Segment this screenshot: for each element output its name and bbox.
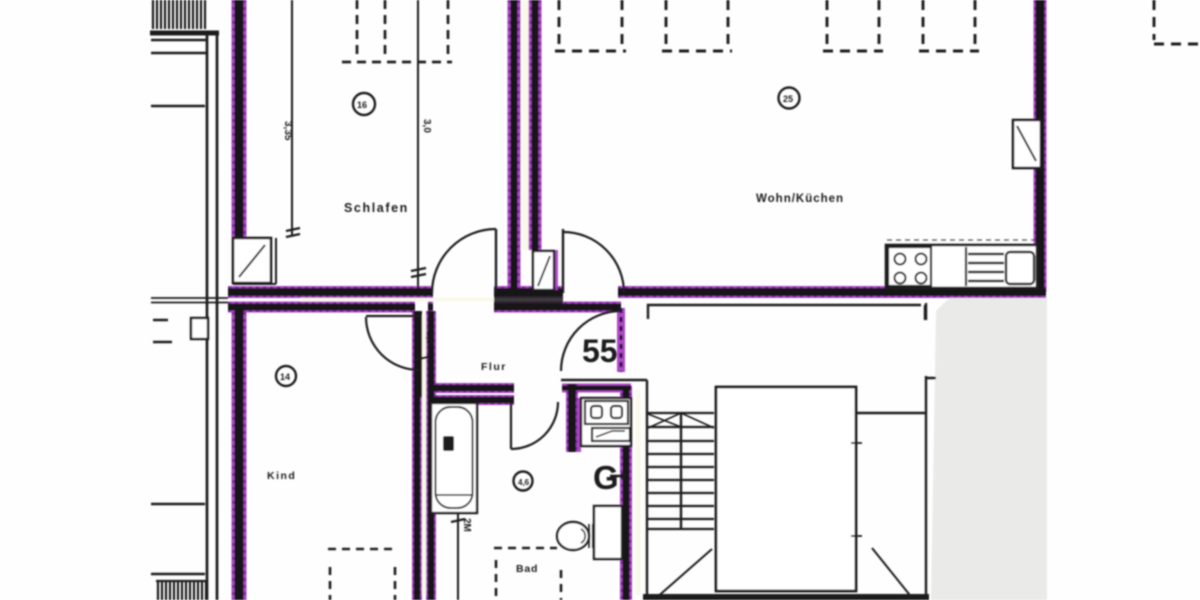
svg-text:55: 55 (582, 333, 618, 369)
svg-text:Flur: Flur (481, 361, 507, 373)
svg-text:G: G (593, 459, 619, 496)
svg-text:Kind: Kind (267, 470, 296, 482)
svg-text:Schlafen: Schlafen (344, 201, 409, 215)
svg-text:16: 16 (357, 100, 367, 110)
svg-text:4,6: 4,6 (518, 478, 530, 487)
svg-text:3,35: 3,35 (282, 121, 293, 141)
svg-text:3,0: 3,0 (421, 119, 432, 133)
svg-text:14: 14 (280, 372, 290, 382)
svg-text:1,5: 1,5 (424, 331, 435, 345)
svg-text:Wohn/Küchen: Wohn/Küchen (756, 193, 844, 205)
svg-text:2M: 2M (461, 518, 472, 532)
svg-text:25: 25 (783, 94, 793, 104)
svg-text:Bad: Bad (516, 563, 538, 575)
